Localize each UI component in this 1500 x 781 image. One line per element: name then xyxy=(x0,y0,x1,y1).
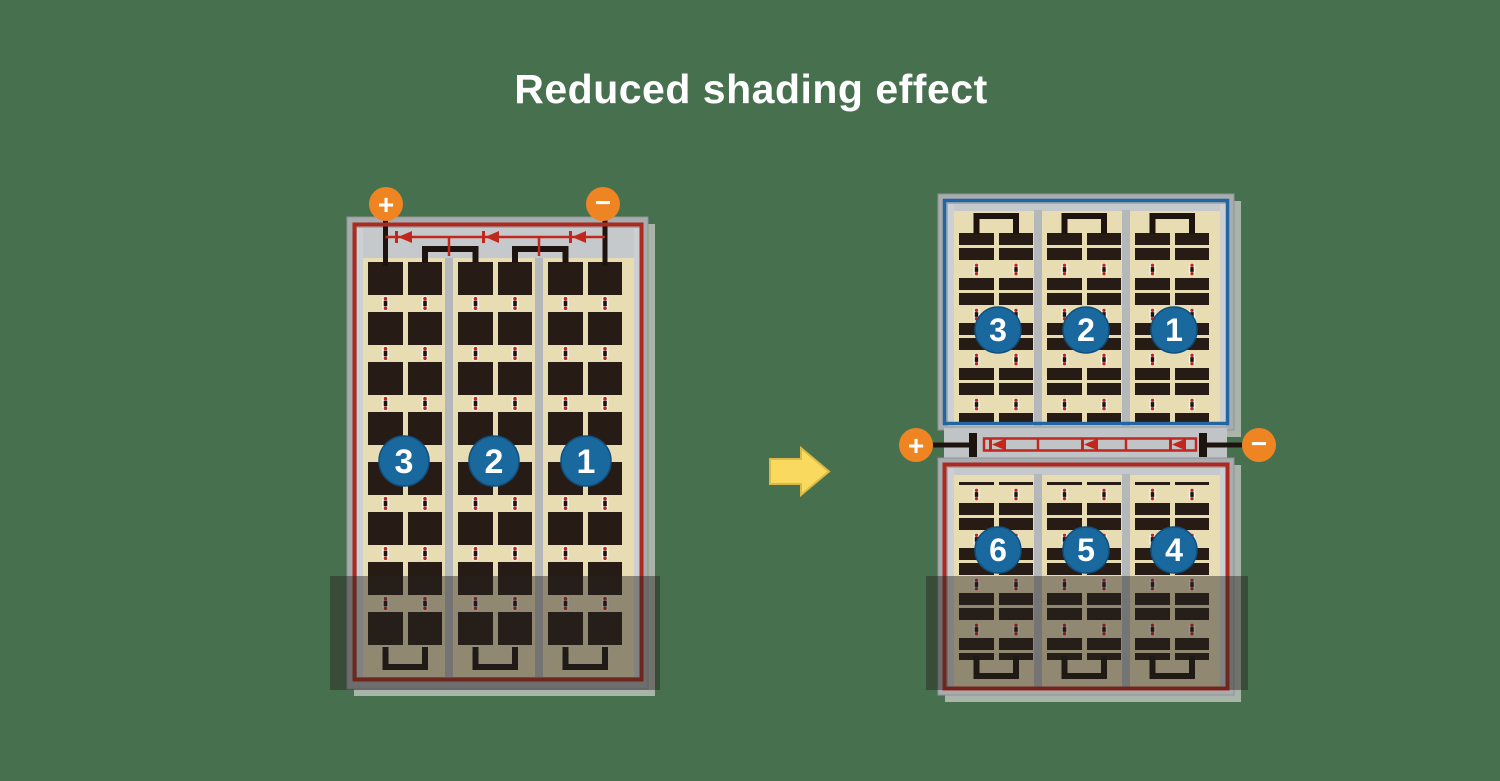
left-edge-strip xyxy=(948,204,954,426)
minus-icon: − xyxy=(595,187,611,218)
section-badge: 2 xyxy=(1063,307,1109,353)
section-badge: 3 xyxy=(975,307,1021,353)
section-number: 3 xyxy=(989,312,1007,348)
background xyxy=(0,0,1500,781)
minus-icon: − xyxy=(1251,428,1267,459)
positive-terminal: + xyxy=(369,187,403,221)
junction-bar xyxy=(969,433,977,457)
section-divider xyxy=(1122,210,1130,426)
section-divider xyxy=(1034,210,1042,426)
section-badge: 6 xyxy=(975,527,1021,573)
section-number: 2 xyxy=(1077,312,1095,348)
plus-icon: + xyxy=(908,430,924,461)
right-panel: 3 2 1 xyxy=(899,194,1276,702)
section-number: 5 xyxy=(1077,532,1095,568)
diagram: Reduced shading effect 3 xyxy=(0,0,1500,781)
right-bottom-strip xyxy=(948,468,1226,475)
shading-overlay xyxy=(926,576,1248,690)
section-badge: 4 xyxy=(1151,527,1197,573)
section-number: 1 xyxy=(1165,312,1183,348)
positive-terminal: + xyxy=(899,428,933,462)
section-badge: 1 xyxy=(561,436,611,486)
left-panel: 3 2 1 + − xyxy=(330,187,660,696)
section-number: 6 xyxy=(989,532,1007,568)
plus-icon: + xyxy=(378,189,394,220)
section-number: 1 xyxy=(577,443,596,481)
negative-terminal: − xyxy=(586,187,620,221)
section-number: 4 xyxy=(1165,532,1183,568)
section-badge: 1 xyxy=(1151,307,1197,353)
right-edge-strip xyxy=(1220,204,1226,426)
section-number: 2 xyxy=(485,443,504,481)
section-number: 3 xyxy=(395,443,414,481)
right-top-strip xyxy=(948,204,1226,211)
section-badge: 3 xyxy=(379,436,429,486)
shading-overlay xyxy=(330,576,660,690)
negative-terminal: − xyxy=(1242,428,1276,462)
section-badge: 2 xyxy=(469,436,519,486)
section-badge: 5 xyxy=(1063,527,1109,573)
page-title: Reduced shading effect xyxy=(514,66,987,112)
junction-bar xyxy=(1199,433,1207,457)
infographic-canvas: Reduced shading effect 3 xyxy=(0,0,1500,781)
